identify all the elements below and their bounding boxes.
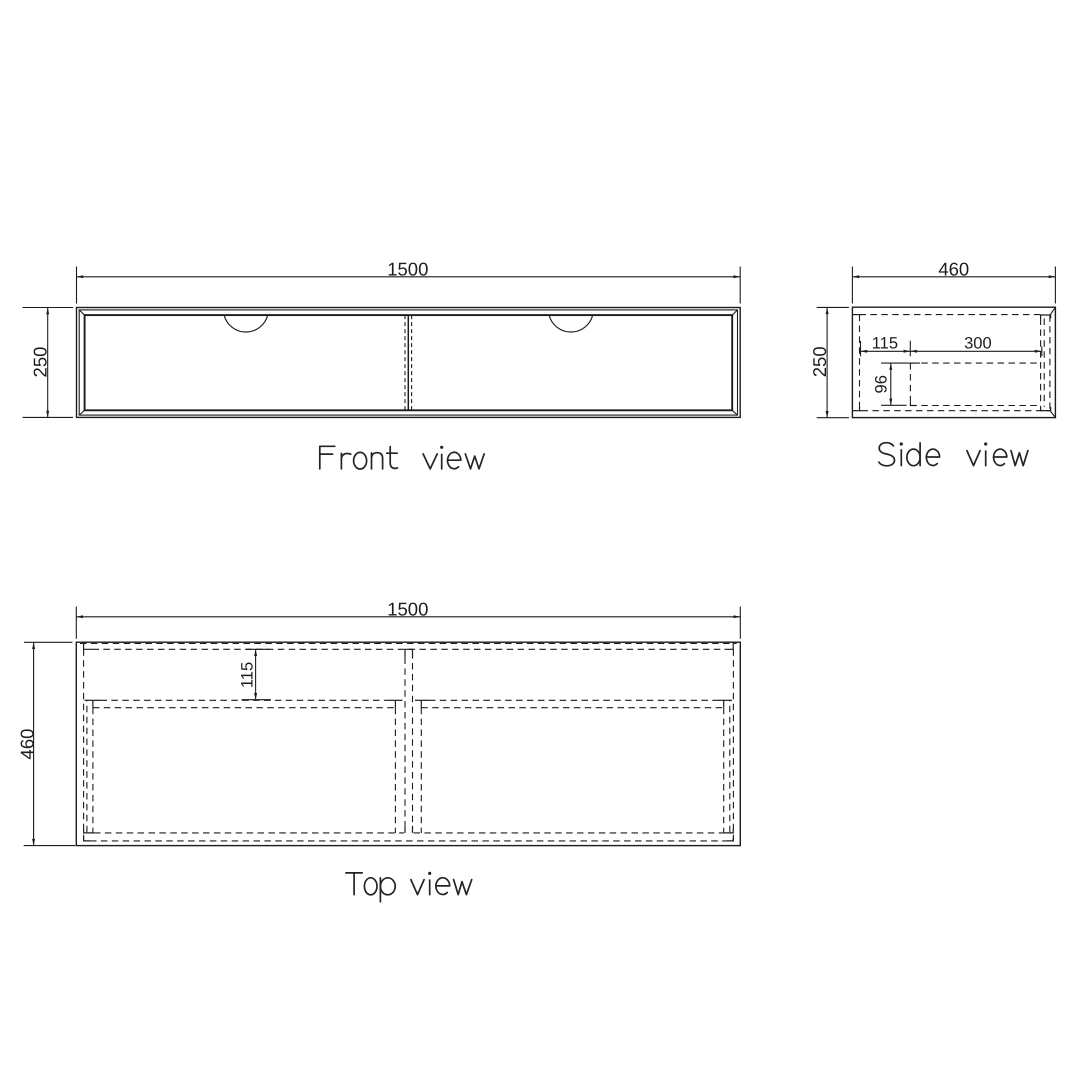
svg-text:115: 115 bbox=[238, 662, 256, 688]
svg-text:300: 300 bbox=[964, 335, 992, 353]
svg-text:250: 250 bbox=[29, 347, 50, 378]
svg-text:250: 250 bbox=[809, 346, 830, 377]
svg-text:1500: 1500 bbox=[387, 598, 428, 619]
svg-text:115: 115 bbox=[872, 335, 898, 353]
svg-text:1500: 1500 bbox=[387, 258, 428, 279]
svg-text:460: 460 bbox=[16, 729, 37, 760]
svg-text:460: 460 bbox=[938, 258, 969, 279]
svg-text:96: 96 bbox=[873, 375, 891, 393]
